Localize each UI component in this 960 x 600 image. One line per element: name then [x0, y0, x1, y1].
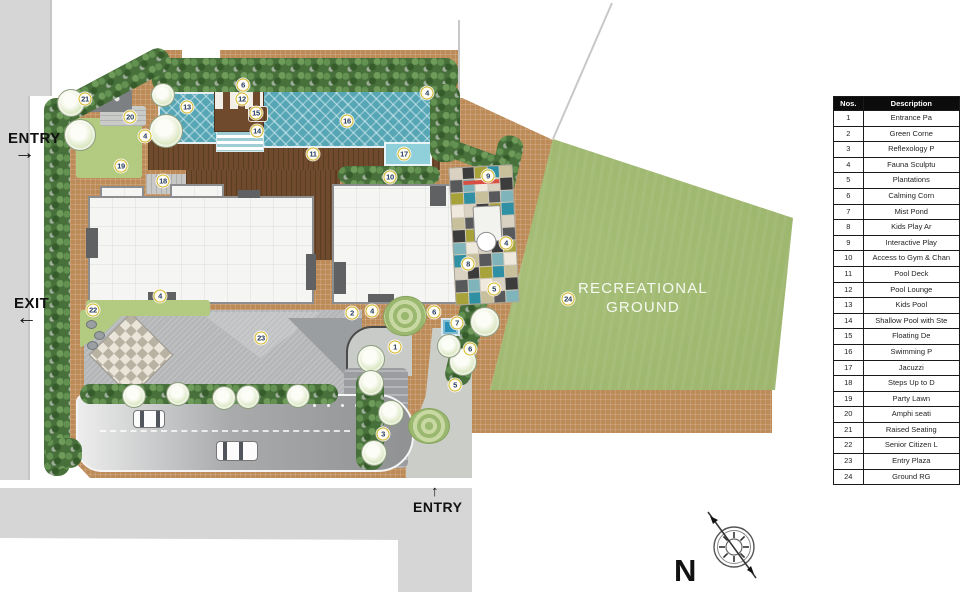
markers-layer: 2120612131514164419181117109485242242467…	[0, 0, 960, 600]
legend-row: 17Jacuzzi	[834, 360, 960, 376]
legend-row-description: Raised Seating	[863, 422, 959, 438]
legend-row: 24Ground RG	[834, 469, 960, 485]
plan-marker-4: 4	[154, 290, 167, 303]
legend-row: 23Entry Plaza	[834, 454, 960, 470]
legend-row-description: Kids Play Ar	[863, 220, 959, 236]
plan-marker-21: 21	[79, 93, 92, 106]
legend-row-description: Steps Up to D	[863, 376, 959, 392]
legend-row-number: 4	[834, 157, 864, 173]
site-plan-canvas: 2120612131514164419181117109485242242467…	[0, 0, 960, 600]
legend-row: 12Pool Lounge	[834, 282, 960, 298]
recreational-ground-line2: GROUND	[558, 299, 728, 318]
entry-bottom-arrow-icon: ↑	[431, 483, 439, 500]
plan-marker-18: 18	[157, 175, 170, 188]
legend-row: 8Kids Play Ar	[834, 220, 960, 236]
legend-row-number: 14	[834, 313, 864, 329]
legend-row: 3Reflexology P	[834, 142, 960, 158]
legend-row-number: 13	[834, 298, 864, 314]
plan-marker-4: 4	[421, 87, 434, 100]
legend-row-number: 9	[834, 235, 864, 251]
legend-row-number: 16	[834, 344, 864, 360]
legend-row-description: Mist Pond	[863, 204, 959, 220]
legend-row: 11Pool Deck	[834, 266, 960, 282]
plan-marker-6: 6	[464, 343, 477, 356]
entry-bottom-label: ENTRY	[413, 499, 462, 515]
legend-header-description: Description	[863, 97, 959, 111]
legend-row-number: 19	[834, 391, 864, 407]
plan-marker-5: 5	[488, 283, 501, 296]
plan-marker-10: 10	[384, 171, 397, 184]
legend-row-number: 22	[834, 438, 864, 454]
legend-row-description: Party Lawn	[863, 391, 959, 407]
legend-row: 15Floating De	[834, 329, 960, 345]
legend-row-number: 24	[834, 469, 864, 485]
plan-marker-19: 19	[115, 160, 128, 173]
legend-row: 5Plantations	[834, 173, 960, 189]
plan-marker-20: 20	[124, 111, 137, 124]
plan-marker-2: 2	[346, 307, 359, 320]
legend-row-number: 1	[834, 111, 864, 127]
legend-row-description: Pool Deck	[863, 266, 959, 282]
legend-row: 18Steps Up to D	[834, 376, 960, 392]
plan-marker-5: 5	[449, 379, 462, 392]
legend-row: 22Senior Citizen L	[834, 438, 960, 454]
plan-marker-24: 24	[562, 293, 575, 306]
plan-marker-7: 7	[451, 317, 464, 330]
legend-row-description: Interactive Play	[863, 235, 959, 251]
legend-row: 10Access to Gym & Chan	[834, 251, 960, 267]
plan-marker-23: 23	[255, 332, 268, 345]
legend-row-number: 15	[834, 329, 864, 345]
legend-row: 4Fauna Sculptu	[834, 157, 960, 173]
legend-row-description: Amphi seati	[863, 407, 959, 423]
legend-row-number: 5	[834, 173, 864, 189]
legend-row: 6Calming Corn	[834, 188, 960, 204]
legend-row: 1Entrance Pa	[834, 111, 960, 127]
legend-row: 19Party Lawn	[834, 391, 960, 407]
plan-marker-11: 11	[307, 148, 320, 161]
entry-left-arrow-icon: →	[14, 141, 35, 165]
legend-row: 7Mist Pond	[834, 204, 960, 220]
legend-row-number: 3	[834, 142, 864, 158]
legend-row-description: Senior Citizen L	[863, 438, 959, 454]
legend-row-description: Shallow Pool with Ste	[863, 313, 959, 329]
plan-marker-9: 9	[482, 170, 495, 183]
legend-row-number: 21	[834, 422, 864, 438]
plan-marker-17: 17	[398, 148, 411, 161]
plan-marker-6: 6	[237, 79, 250, 92]
plan-marker-12: 12	[236, 93, 249, 106]
legend-row-number: 11	[834, 266, 864, 282]
plan-marker-4: 4	[366, 305, 379, 318]
legend-row: 20Amphi seati	[834, 407, 960, 423]
legend-row-number: 18	[834, 376, 864, 392]
legend-header-nos: Nos.	[834, 97, 864, 111]
plan-marker-8: 8	[462, 258, 475, 271]
legend-row-number: 2	[834, 126, 864, 142]
legend-row-description: Floating De	[863, 329, 959, 345]
legend-row: 21Raised Seating	[834, 422, 960, 438]
recreational-ground-label: RECREATIONAL GROUND	[558, 280, 728, 318]
plan-marker-15: 15	[250, 107, 263, 120]
legend-header-row: Nos. Description	[834, 97, 960, 111]
legend-row: 14Shallow Pool with Ste	[834, 313, 960, 329]
legend-row-description: Plantations	[863, 173, 959, 189]
legend-row-number: 20	[834, 407, 864, 423]
legend-row-description: Entry Plaza	[863, 454, 959, 470]
legend-row-description: Pool Lounge	[863, 282, 959, 298]
legend-row-number: 6	[834, 188, 864, 204]
legend-row-description: Swimming P	[863, 344, 959, 360]
plan-marker-4: 4	[500, 237, 513, 250]
legend-row-description: Access to Gym & Chan	[863, 251, 959, 267]
legend-row-number: 8	[834, 220, 864, 236]
plan-marker-16: 16	[341, 115, 354, 128]
legend-row-description: Entrance Pa	[863, 111, 959, 127]
exit-left-arrow-icon: ←	[16, 306, 37, 330]
legend-row-description: Green Corne	[863, 126, 959, 142]
plan-marker-14: 14	[251, 125, 264, 138]
legend-row-description: Reflexology P	[863, 142, 959, 158]
plan-marker-13: 13	[181, 101, 194, 114]
plan-marker-1: 1	[389, 341, 402, 354]
legend-row-number: 7	[834, 204, 864, 220]
legend-row-number: 23	[834, 454, 864, 470]
north-letter: N	[674, 553, 696, 589]
legend-row-description: Ground RG	[863, 469, 959, 485]
legend-row-description: Fauna Sculptu	[863, 157, 959, 173]
legend-table-body: 1Entrance Pa2Green Corne3Reflexology P4F…	[834, 111, 960, 485]
plan-marker-3: 3	[377, 428, 390, 441]
legend-row: 9Interactive Play	[834, 235, 960, 251]
legend-table: Nos. Description 1Entrance Pa2Green Corn…	[833, 96, 960, 485]
legend-row: 2Green Corne	[834, 126, 960, 142]
legend-row-description: Jacuzzi	[863, 360, 959, 376]
recreational-ground-line1: RECREATIONAL	[558, 280, 728, 299]
plan-marker-4: 4	[139, 130, 152, 143]
legend-row-number: 10	[834, 251, 864, 267]
legend-row: 13Kids Pool	[834, 298, 960, 314]
legend-row-number: 17	[834, 360, 864, 376]
plan-marker-6: 6	[428, 306, 441, 319]
legend-row-description: Calming Corn	[863, 188, 959, 204]
legend-row: 16Swimming P	[834, 344, 960, 360]
legend-row-description: Kids Pool	[863, 298, 959, 314]
legend-row-number: 12	[834, 282, 864, 298]
plan-marker-22: 22	[87, 304, 100, 317]
